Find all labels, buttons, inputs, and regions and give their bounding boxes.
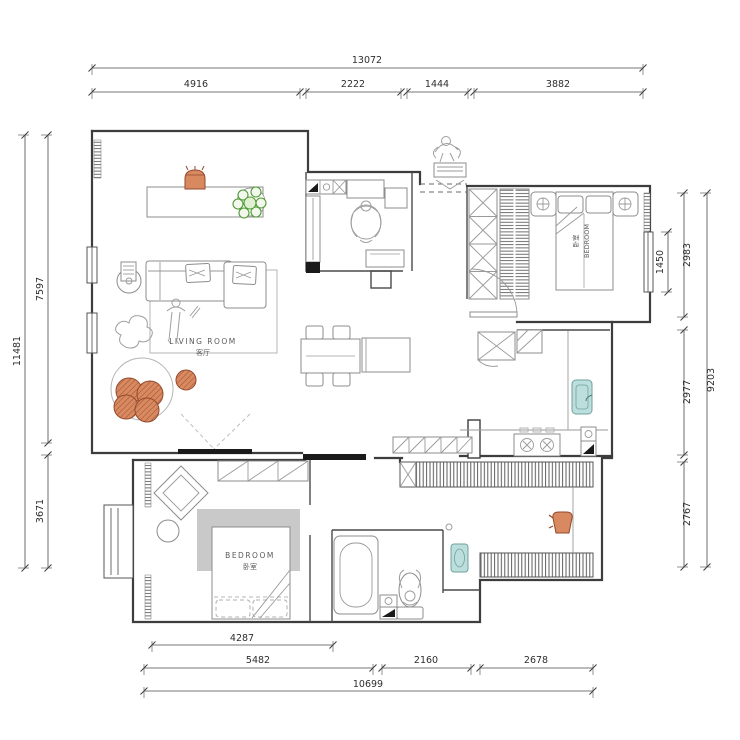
dim-bottom-seg-3: 2678 bbox=[524, 655, 548, 666]
chair bbox=[306, 373, 323, 386]
washer-drain-legend bbox=[380, 595, 397, 619]
bathtub bbox=[334, 536, 378, 614]
vase-icon bbox=[185, 166, 205, 189]
dim-top-seg-1: 4916 bbox=[184, 79, 208, 90]
shoe-cabinet bbox=[393, 437, 472, 453]
curtain-strip bbox=[145, 463, 151, 507]
dim-left-total: 11481 bbox=[12, 336, 23, 366]
floor-plan-drawing: LIVING ROOM 客厅 bbox=[0, 0, 740, 740]
dim-top-seg-4: 3882 bbox=[546, 79, 570, 90]
dim-right-inner: 1450 bbox=[655, 250, 666, 274]
living-room-label-zh: 客厅 bbox=[196, 348, 210, 357]
chair bbox=[306, 326, 323, 339]
curtain-strip bbox=[644, 193, 650, 231]
curtain-strip bbox=[145, 575, 151, 619]
dim-top-seg-3: 1444 bbox=[425, 79, 449, 90]
dim-right-seg-3: 2767 bbox=[682, 502, 693, 526]
dim-left-seg-1: 7597 bbox=[35, 277, 46, 301]
dim-bottom-seg-1: 5482 bbox=[246, 655, 270, 666]
bedroom-left-label-zh: 卧室 bbox=[243, 562, 257, 571]
tv bbox=[178, 449, 252, 454]
pillow bbox=[558, 196, 583, 213]
bedroom-right-label: BEDROOM bbox=[583, 224, 591, 258]
sofa bbox=[146, 261, 266, 308]
stove bbox=[514, 428, 560, 456]
curtain-strip bbox=[94, 140, 101, 178]
bedroom-right-label-zh: 卧室 bbox=[571, 234, 580, 248]
sliding-door-track bbox=[303, 454, 366, 460]
chair bbox=[333, 373, 350, 386]
pillow bbox=[586, 196, 611, 213]
dim-right-seg-1: 2983 bbox=[682, 243, 693, 267]
dim-right-total: 9203 bbox=[706, 368, 717, 392]
floor-plan-page: LIVING ROOM 客厅 bbox=[0, 0, 740, 740]
washbasin bbox=[451, 544, 468, 572]
low-cabinet bbox=[366, 250, 404, 267]
dim-left-seg-2: 3671 bbox=[35, 499, 46, 523]
stool bbox=[157, 520, 179, 542]
dim-top-seg-2: 2222 bbox=[341, 79, 365, 90]
side-table bbox=[385, 188, 407, 208]
bedroom-window bbox=[644, 232, 653, 292]
balcony-railing bbox=[480, 553, 593, 577]
bay-window bbox=[104, 505, 133, 578]
dim-top-total: 13072 bbox=[352, 55, 382, 66]
floor-drain-legend bbox=[581, 427, 596, 456]
living-room-label: LIVING ROOM bbox=[169, 337, 237, 346]
desk bbox=[347, 180, 384, 198]
entry-mat bbox=[434, 163, 466, 177]
dim-bottom-total: 10699 bbox=[353, 679, 383, 690]
double-bed bbox=[212, 527, 290, 619]
bedroom-left-label: BEDROOM bbox=[225, 551, 275, 560]
chair bbox=[333, 326, 350, 339]
dim-bottom-inner: 4287 bbox=[230, 633, 254, 644]
dim-right-seg-2: 2977 bbox=[682, 380, 693, 404]
kitchen-island bbox=[362, 338, 410, 372]
balcony-railing bbox=[400, 462, 593, 487]
dim-bottom-seg-2: 2160 bbox=[414, 655, 438, 666]
